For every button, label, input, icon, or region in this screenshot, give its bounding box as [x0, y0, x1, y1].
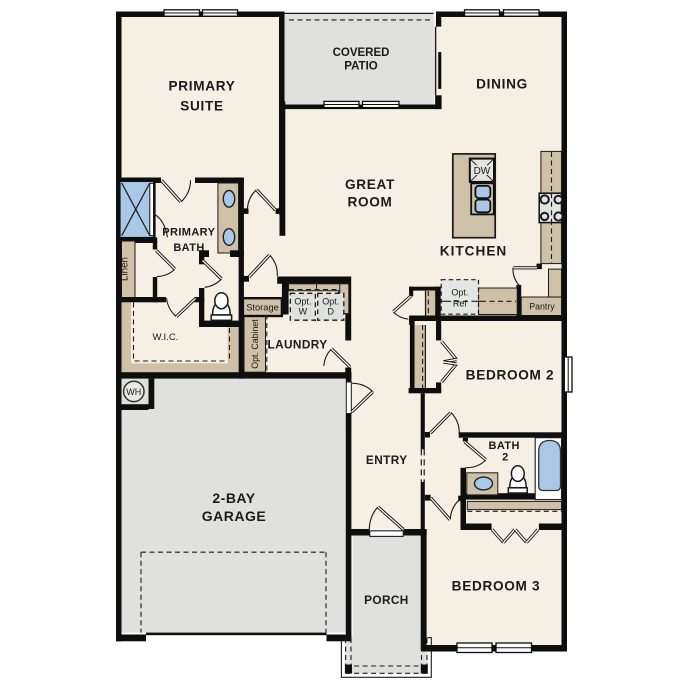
- svg-text:PORCH: PORCH: [364, 593, 409, 607]
- svg-text:2-BAY: 2-BAY: [212, 490, 255, 506]
- svg-text:PRIMARY: PRIMARY: [168, 79, 235, 94]
- svg-text:Opt.: Opt.: [451, 288, 468, 298]
- svg-text:DW: DW: [474, 166, 491, 177]
- svg-text:GARAGE: GARAGE: [202, 508, 266, 524]
- svg-text:Ref: Ref: [453, 299, 468, 309]
- svg-text:COVERED: COVERED: [333, 47, 390, 59]
- svg-text:Linen: Linen: [120, 257, 131, 281]
- svg-text:BATH: BATH: [489, 440, 520, 452]
- svg-text:BEDROOM 3: BEDROOM 3: [452, 579, 541, 594]
- svg-text:Storage: Storage: [246, 303, 279, 313]
- svg-text:WH: WH: [126, 387, 141, 397]
- svg-text:2: 2: [502, 452, 509, 464]
- svg-text:Opt.: Opt.: [322, 296, 339, 306]
- svg-text:GREAT: GREAT: [345, 177, 395, 192]
- svg-text:KITCHEN: KITCHEN: [440, 243, 507, 258]
- svg-text:SUITE: SUITE: [180, 99, 224, 114]
- svg-text:Opt.: Opt.: [294, 296, 311, 306]
- svg-text:ROOM: ROOM: [347, 194, 392, 209]
- svg-text:Opt. Cabinet: Opt. Cabinet: [250, 319, 260, 369]
- svg-text:PRIMARY: PRIMARY: [162, 227, 215, 239]
- svg-text:W: W: [299, 307, 308, 317]
- svg-text:DINING: DINING: [476, 77, 528, 92]
- svg-text:LAUNDRY: LAUNDRY: [267, 337, 327, 351]
- svg-text:Pantry: Pantry: [529, 301, 555, 311]
- svg-text:W.I.C.: W.I.C.: [152, 332, 178, 343]
- svg-text:PATIO: PATIO: [344, 61, 377, 73]
- svg-text:BEDROOM 2: BEDROOM 2: [466, 368, 555, 383]
- svg-text:D: D: [328, 307, 335, 317]
- svg-text:ENTRY: ENTRY: [366, 453, 408, 467]
- svg-text:BATH: BATH: [173, 242, 204, 254]
